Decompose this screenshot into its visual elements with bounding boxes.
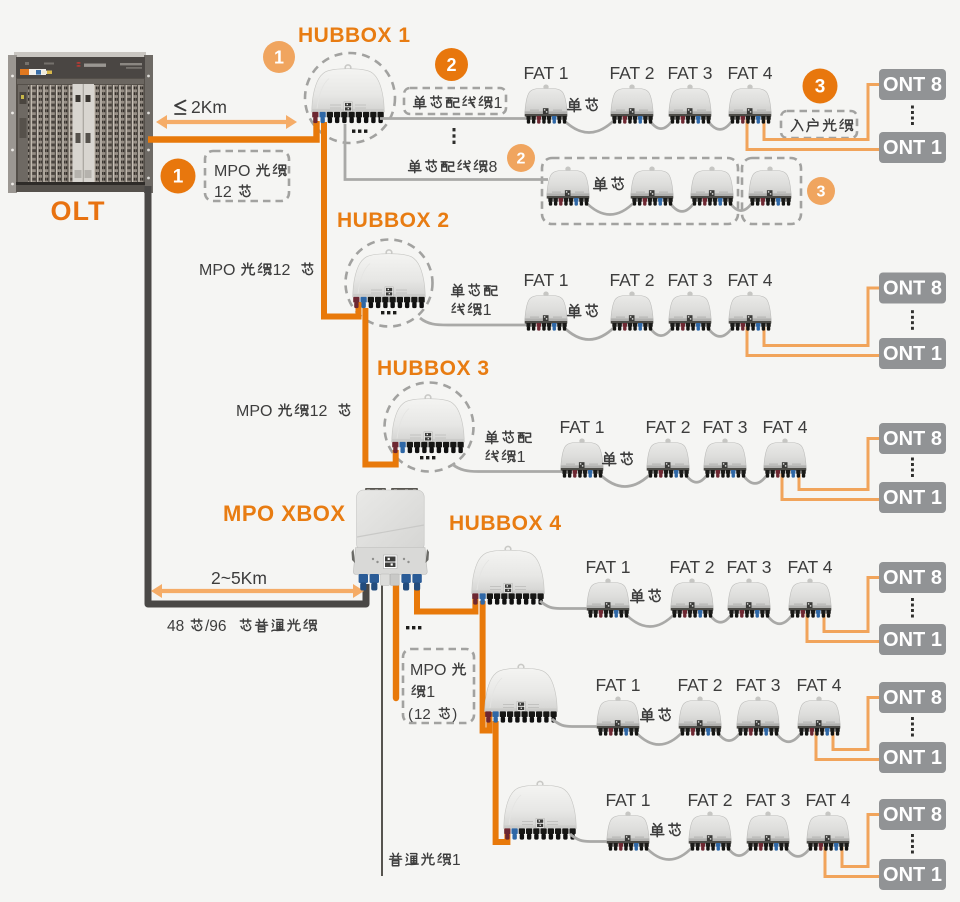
svg-text:ONT 8: ONT 8 <box>883 567 942 589</box>
svg-text:1: 1 <box>494 95 503 112</box>
svg-text:3: 3 <box>817 184 826 201</box>
svg-text:1: 1 <box>483 302 492 319</box>
svg-text:1: 1 <box>274 47 284 67</box>
svg-text:ONT 1: ONT 1 <box>883 487 942 509</box>
svg-text:FAT 1: FAT 1 <box>585 557 630 577</box>
svg-text:3: 3 <box>815 77 826 98</box>
svg-text:HUBBOX 1: HUBBOX 1 <box>298 24 411 47</box>
svg-text:12: 12 <box>273 262 291 279</box>
svg-text:FAT 4: FAT 4 <box>762 417 807 437</box>
svg-text:ONT 8: ONT 8 <box>883 74 942 96</box>
svg-text:12: 12 <box>214 184 232 201</box>
svg-text:MPO XBOX: MPO XBOX <box>223 501 346 526</box>
svg-text:FAT 1: FAT 1 <box>559 417 604 437</box>
svg-text:FAT 3: FAT 3 <box>702 417 747 437</box>
svg-text:ONT 8: ONT 8 <box>883 687 942 709</box>
svg-text:FAT 4: FAT 4 <box>787 557 832 577</box>
svg-text:ONT 1: ONT 1 <box>883 747 942 769</box>
svg-text:ONT 8: ONT 8 <box>883 428 942 450</box>
svg-text:1: 1 <box>173 167 184 188</box>
svg-text:FAT 4: FAT 4 <box>805 790 850 810</box>
svg-text:FAT 3: FAT 3 <box>745 790 790 810</box>
svg-text:1: 1 <box>517 449 526 466</box>
svg-text:FAT 1: FAT 1 <box>595 675 640 695</box>
svg-text:1: 1 <box>452 852 461 869</box>
svg-text:2~5Km: 2~5Km <box>211 568 267 588</box>
svg-text:ONT 1: ONT 1 <box>883 343 942 365</box>
svg-text:FAT 2: FAT 2 <box>677 675 722 695</box>
svg-text:FAT 3: FAT 3 <box>726 557 771 577</box>
svg-text:FAT 4: FAT 4 <box>727 270 772 290</box>
svg-text:FAT 3: FAT 3 <box>735 675 780 695</box>
svg-text:FAT 1: FAT 1 <box>523 63 568 83</box>
svg-text:HUBBOX 4: HUBBOX 4 <box>449 512 562 535</box>
svg-text:ONT 8: ONT 8 <box>883 804 942 826</box>
svg-text:ONT 1: ONT 1 <box>883 629 942 651</box>
svg-text:(: ( <box>408 706 413 723</box>
svg-text:FAT 1: FAT 1 <box>523 270 568 290</box>
svg-text:2: 2 <box>446 55 456 75</box>
svg-text:FAT 3: FAT 3 <box>667 270 712 290</box>
svg-text:MPO: MPO <box>214 163 250 180</box>
svg-text:): ) <box>452 706 457 723</box>
svg-text:8: 8 <box>489 159 498 176</box>
svg-text:ONT 1: ONT 1 <box>883 137 942 159</box>
svg-text:OLT: OLT <box>51 196 106 226</box>
svg-text:FAT 3: FAT 3 <box>667 63 712 83</box>
svg-text:FAT 2: FAT 2 <box>669 557 714 577</box>
svg-text:FAT 2: FAT 2 <box>645 417 690 437</box>
svg-text:MPO: MPO <box>410 662 446 679</box>
svg-text:FAT 1: FAT 1 <box>605 790 650 810</box>
svg-text:ONT 8: ONT 8 <box>883 278 942 300</box>
svg-text:FAT 2: FAT 2 <box>609 270 654 290</box>
svg-text:MPO: MPO <box>199 262 235 279</box>
svg-text:FAT 4: FAT 4 <box>727 63 772 83</box>
svg-text:FAT 4: FAT 4 <box>796 675 841 695</box>
svg-text:FAT 2: FAT 2 <box>687 790 732 810</box>
svg-text:ONT 1: ONT 1 <box>883 864 942 886</box>
svg-text:FAT 2: FAT 2 <box>609 63 654 83</box>
svg-text:12: 12 <box>310 403 328 420</box>
svg-text:HUBBOX 3: HUBBOX 3 <box>377 357 490 380</box>
svg-text:2Km: 2Km <box>191 97 227 117</box>
svg-text:2: 2 <box>517 151 526 168</box>
svg-text:48: 48 <box>167 618 184 635</box>
svg-text:/96: /96 <box>205 618 227 635</box>
svg-text:MPO: MPO <box>236 403 272 420</box>
svg-text:12: 12 <box>414 706 431 723</box>
svg-text:HUBBOX 2: HUBBOX 2 <box>337 209 450 232</box>
svg-text:1: 1 <box>426 684 435 701</box>
